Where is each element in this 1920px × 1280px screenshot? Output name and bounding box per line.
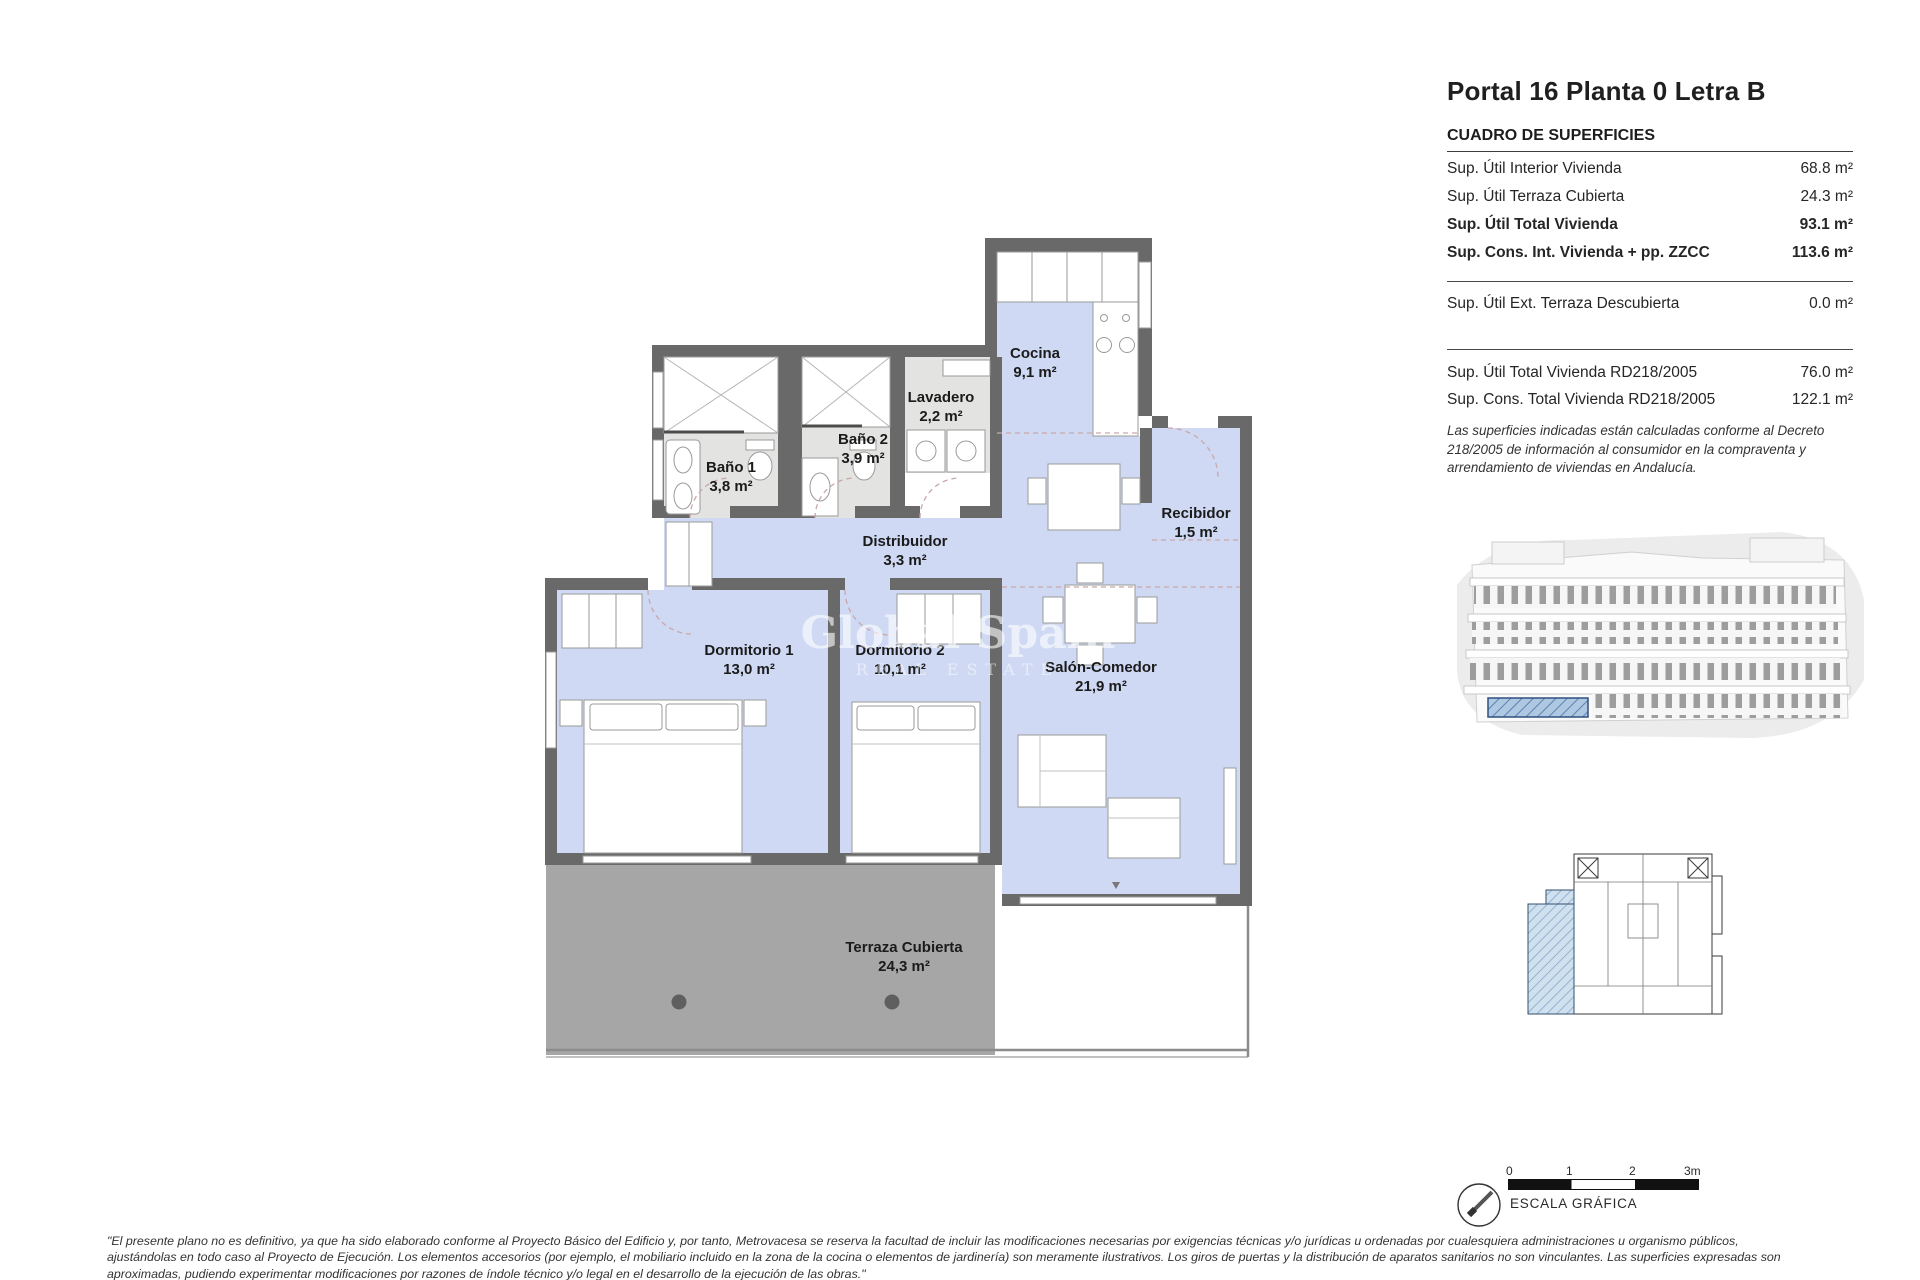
room-label-bano1: Baño 13,8 m² — [706, 458, 756, 496]
scale-tick: 1 — [1566, 1164, 1573, 1178]
room-label-recibidor: Recibidor1,5 m² — [1161, 504, 1230, 542]
room-label-lavadero: Lavadero2,2 m² — [908, 388, 975, 426]
compass-icon — [1456, 1182, 1502, 1228]
scale-tick: 3m — [1684, 1164, 1701, 1178]
surface-value: 76.0 m² — [1800, 364, 1853, 386]
room-label-bano2: Baño 23,9 m² — [838, 430, 888, 468]
surface-label: Sup. Útil Ext. Terraza Descubierta — [1447, 295, 1679, 317]
surface-value: 0.0 m² — [1809, 295, 1853, 317]
surface-label: Sup. Cons. Int. Vivienda + pp. ZZCC — [1447, 244, 1710, 266]
room-label-distribuidor: Distribuidor3,3 m² — [863, 532, 948, 570]
surface-value: 122.1 m² — [1792, 391, 1853, 413]
surface-row-construida: Sup. Cons. Int. Vivienda + pp. ZZCC 113.… — [1447, 244, 1853, 266]
scale-tick: 0 — [1506, 1164, 1513, 1178]
disclaimer-line: aproximadas, pudiendo experimentar modif… — [107, 1266, 1837, 1280]
room-label-cocina: Cocina9,1 m² — [1010, 344, 1060, 382]
watermark-brand: Global Spain — [801, 608, 1116, 659]
surface-row: Sup. Útil Terraza Cubierta 24.3 m² — [1447, 188, 1853, 210]
surface-row-rd-cons: Sup. Cons. Total Vivienda RD218/2005 122… — [1447, 391, 1853, 413]
divider — [1447, 349, 1853, 350]
surface-value: 113.6 m² — [1792, 244, 1853, 266]
room-label-terraza: Terraza Cubierta24,3 m² — [845, 938, 962, 976]
surface-value: 24.3 m² — [1800, 188, 1853, 210]
scale-bar-graphic — [1508, 1179, 1699, 1190]
surface-row-total: Sup. Útil Total Vivienda 93.1 m² — [1447, 216, 1853, 238]
surface-row: Sup. Útil Interior Vivienda 68.8 m² — [1447, 160, 1853, 182]
key-plan — [1516, 846, 1771, 1026]
surface-label: Sup. Útil Total Vivienda RD218/2005 — [1447, 364, 1697, 386]
divider — [1447, 281, 1853, 282]
watermark-subtitle: REAL ESTATE — [856, 660, 1060, 679]
surface-row-rd-util: Sup. Útil Total Vivienda RD218/2005 76.0… — [1447, 364, 1853, 386]
surface-label: Sup. Útil Total Vivienda — [1447, 216, 1618, 238]
scale-tick: 2 — [1629, 1164, 1636, 1178]
building-render-illustration — [1452, 530, 1867, 745]
scale-bar-label: ESCALA GRÁFICA — [1510, 1196, 1638, 1211]
plan-sheet: Cocina9,1 m² Lavadero2,2 m² Baño 13,8 m²… — [0, 0, 1920, 1280]
disclaimer-line: ajustándolas en todo caso al Proyecto de… — [107, 1249, 1837, 1265]
room-label-dormitorio1: Dormitorio 113,0 m² — [704, 641, 793, 679]
page-title: Portal 16 Planta 0 Letra B — [1447, 76, 1857, 107]
surfaces-note: Las superficies indicadas están calculad… — [1447, 422, 1827, 478]
surface-value: 68.8 m² — [1800, 160, 1853, 182]
surfaces-heading: CUADRO DE SUPERFICIES — [1447, 127, 1853, 152]
highlighted-unit-keyplan — [1528, 904, 1574, 1014]
surface-value: 93.1 m² — [1800, 216, 1853, 238]
surface-row-ext: Sup. Útil Ext. Terraza Descubierta 0.0 m… — [1447, 295, 1853, 317]
highlighted-unit-render — [1488, 698, 1588, 717]
surface-label: Sup. Útil Interior Vivienda — [1447, 160, 1622, 182]
footer-disclaimer: "El presente plano no es definitivo, ya … — [107, 1233, 1837, 1280]
surface-label: Sup. Cons. Total Vivienda RD218/2005 — [1447, 391, 1715, 413]
surface-label: Sup. Útil Terraza Cubierta — [1447, 188, 1624, 210]
disclaimer-line: "El presente plano no es definitivo, ya … — [107, 1233, 1837, 1249]
room-label-salon-comedor: Salón-Comedor21,9 m² — [1045, 658, 1157, 696]
